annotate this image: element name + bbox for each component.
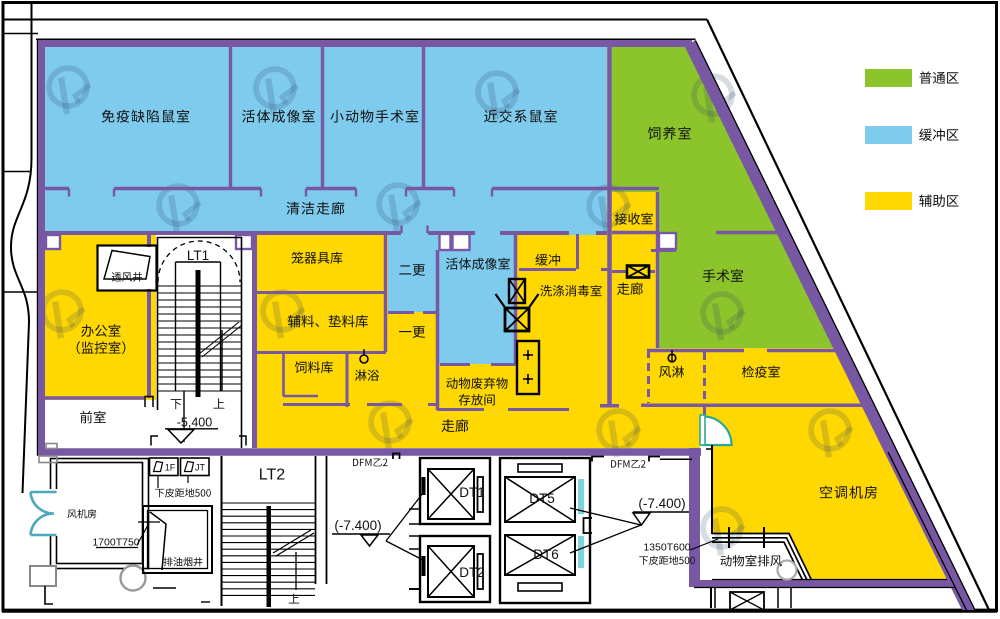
svg-text:JT: JT — [195, 463, 206, 473]
svg-text:LT1: LT1 — [187, 248, 209, 263]
svg-text:(-7.400): (-7.400) — [638, 496, 685, 511]
svg-text:1F: 1F — [165, 463, 176, 473]
svg-text:DT2: DT2 — [459, 565, 485, 580]
svg-text:LT2: LT2 — [259, 467, 285, 484]
svg-text:1700T750: 1700T750 — [92, 537, 139, 549]
svg-text:DT6: DT6 — [533, 547, 559, 562]
svg-text:(-7.400): (-7.400) — [334, 518, 381, 533]
svg-text:DT5: DT5 — [529, 491, 555, 506]
svg-text:1350T600: 1350T600 — [643, 542, 690, 554]
svg-text:-5,400: -5,400 — [177, 416, 212, 430]
svg-text:DT1: DT1 — [459, 485, 485, 500]
